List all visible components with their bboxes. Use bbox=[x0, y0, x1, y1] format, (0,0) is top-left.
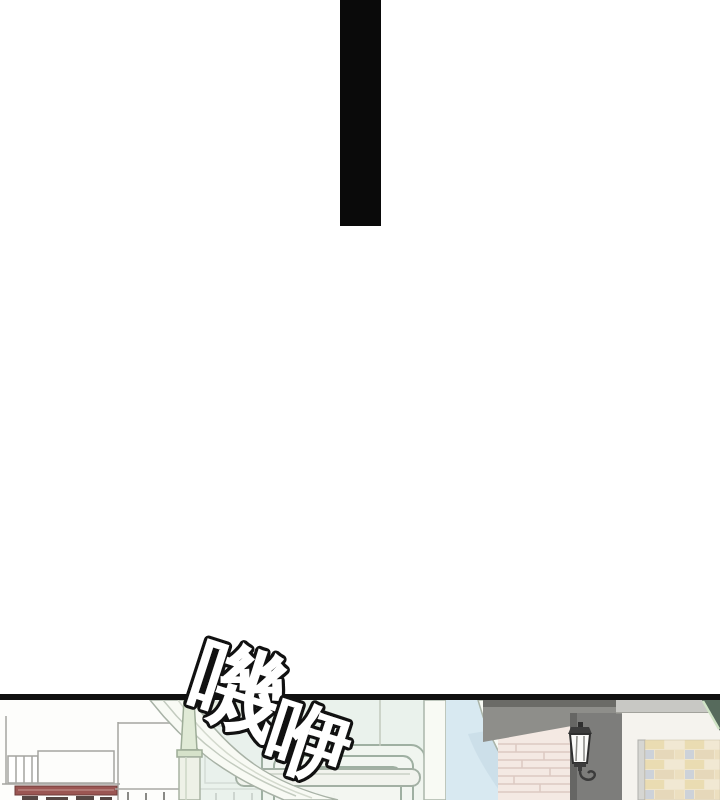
red-roof-ledge bbox=[15, 786, 117, 800]
comic-scene: 嘰 咿 bbox=[0, 0, 720, 800]
tan-brick-inset bbox=[638, 740, 720, 800]
top-black-bar bbox=[340, 0, 381, 226]
panel-border-line bbox=[0, 694, 720, 700]
comic-page: 嘰 咿 bbox=[0, 0, 720, 800]
